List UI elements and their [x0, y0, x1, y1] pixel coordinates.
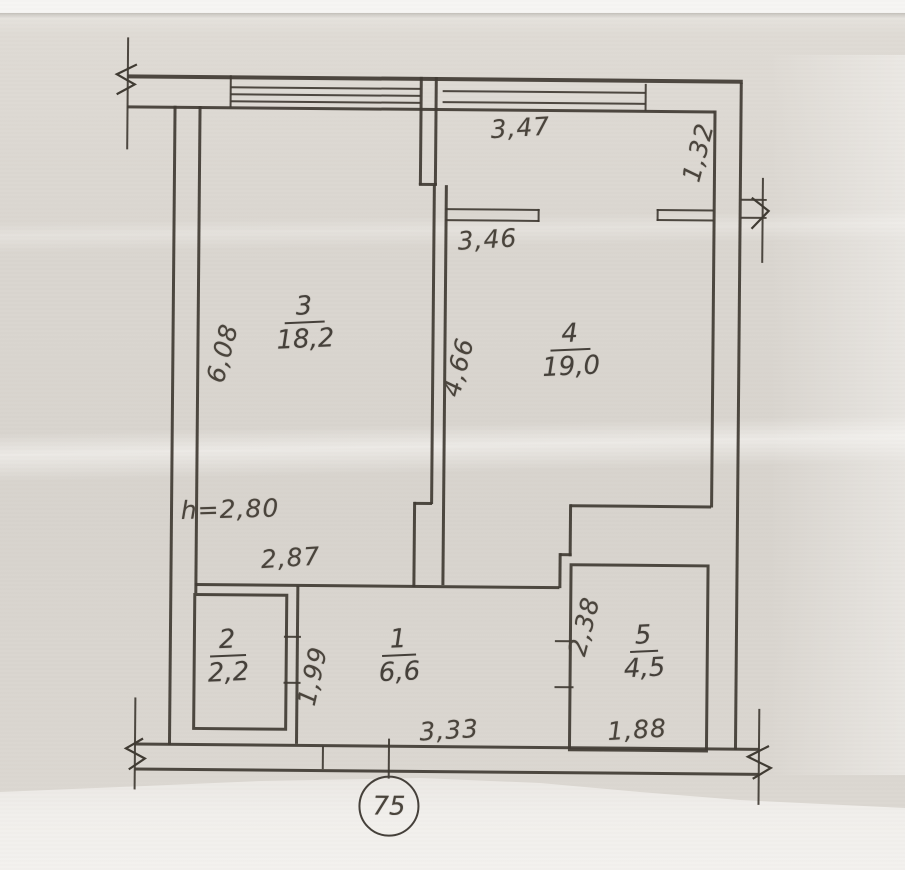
wall-line — [558, 553, 561, 588]
dim-ceiling-height: h=2,80 — [180, 493, 279, 525]
window-line — [230, 75, 232, 107]
dim-room1-width: 3,33 — [418, 714, 479, 747]
axis-circle: 75 — [358, 775, 420, 837]
wall-line — [569, 504, 572, 556]
wall-line — [414, 502, 432, 505]
wall-line — [295, 586, 299, 744]
room-area: 19,0 — [542, 352, 601, 381]
wall-line — [710, 110, 716, 507]
room-number: 4 — [561, 320, 579, 347]
room-number: 2 — [218, 626, 236, 653]
wall-line — [434, 77, 438, 185]
wall-break-mark — [751, 195, 777, 235]
room-area: 2,2 — [207, 659, 249, 687]
wall-break-mark — [123, 737, 149, 771]
partition-line — [446, 208, 540, 211]
wall-line — [570, 504, 711, 508]
room-number: 3 — [295, 293, 313, 320]
room-4-label: 4 19,0 — [540, 319, 600, 380]
wall-line — [168, 106, 177, 745]
room-3-label: 3 18,2 — [274, 292, 334, 353]
wall-line — [419, 77, 423, 185]
window-line — [443, 101, 646, 105]
dim-room3-width: 2,87 — [260, 541, 321, 574]
room-number: 5 — [634, 622, 652, 649]
scanned-floor-plan: 3 18,2 4 19,0 1 6,6 2 2,2 5 4,5 3,47 1,3… — [0, 0, 905, 870]
room-area: 18,2 — [276, 325, 335, 354]
joint-tick — [322, 746, 324, 769]
window-line — [443, 90, 646, 94]
partition-line — [446, 219, 540, 222]
wall-line — [734, 83, 743, 750]
axis-number: 75 — [372, 791, 405, 821]
room-2-label: 2 2,2 — [206, 626, 250, 687]
dim-room3-depth: 6,08 — [201, 321, 244, 386]
dim-top-window-width: 3,47 — [490, 111, 551, 144]
dim-room4-opening-width: 3,46 — [457, 223, 518, 256]
wall-line — [135, 767, 759, 775]
room-1-label: 1 6,6 — [377, 625, 421, 686]
window-line — [231, 86, 421, 90]
room-number: 1 — [389, 626, 407, 653]
wall-break-mark — [745, 745, 775, 781]
room-area: 4,5 — [623, 654, 665, 682]
partition-line — [538, 209, 540, 222]
window-line — [231, 93, 421, 97]
wall-break-mark — [113, 63, 143, 97]
window-line — [231, 100, 421, 104]
wall-line — [412, 502, 416, 587]
partition-line — [657, 209, 714, 211]
axis-line — [388, 739, 390, 779]
partition-line — [657, 209, 659, 221]
window-line — [645, 84, 647, 111]
wall-line — [430, 185, 436, 504]
floor-plan-drawing: 3 18,2 4 19,0 1 6,6 2 2,2 5 4,5 3,47 1,3… — [0, 0, 905, 870]
room-area: 6,6 — [378, 658, 420, 686]
wall-line — [195, 583, 559, 589]
room-5-label: 5 4,5 — [622, 622, 666, 683]
dim-room5-width: 1,88 — [606, 714, 667, 747]
partition-line — [657, 219, 714, 221]
